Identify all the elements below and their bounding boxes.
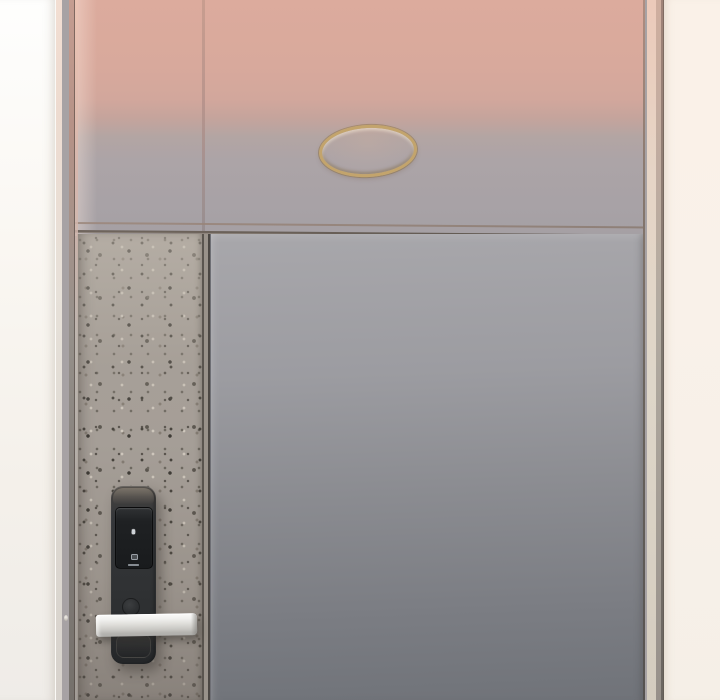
lock-indicator-slot-right — [128, 564, 139, 566]
wall-left — [0, 0, 55, 700]
wall-right — [664, 0, 720, 700]
scene-door-illustration: 1 2 3 4 5 6 7 8 9 * 0 # — [0, 0, 720, 700]
lock-keypad-grid: 1 2 3 4 5 6 7 8 9 * 0 # — [118, 511, 150, 553]
lock-indicator-slots — [119, 564, 149, 566]
lock-brand-icon — [131, 554, 138, 560]
door-right-edge-line — [643, 0, 645, 700]
door-frame-right-inner-strip — [647, 0, 656, 700]
door-handle-lever[interactable] — [96, 613, 197, 637]
lock-bottom-plate — [116, 634, 151, 658]
door-handle-endcap — [191, 613, 197, 635]
door-frame-left-middle-strip — [62, 0, 69, 700]
door-upper-panel-vertical-seam — [202, 0, 205, 232]
door-leaf: 1 2 3 4 5 6 7 8 9 * 0 # — [75, 0, 645, 700]
lock-top-cap — [113, 488, 154, 504]
door-frame-screw-highlight — [64, 615, 68, 621]
door-left-edge-highlight — [75, 0, 78, 700]
door-vertical-groove — [202, 234, 211, 700]
lock-keypad-panel: 1 2 3 4 5 6 7 8 9 * 0 # — [115, 507, 153, 569]
door-upper-panel — [75, 0, 645, 236]
digital-door-lock: 1 2 3 4 5 6 7 8 9 * 0 # — [111, 486, 156, 664]
door-frame-left-outer-strip — [55, 0, 62, 700]
keypad-key-hash[interactable]: # — [132, 528, 136, 536]
door-lower-panel — [211, 234, 643, 700]
